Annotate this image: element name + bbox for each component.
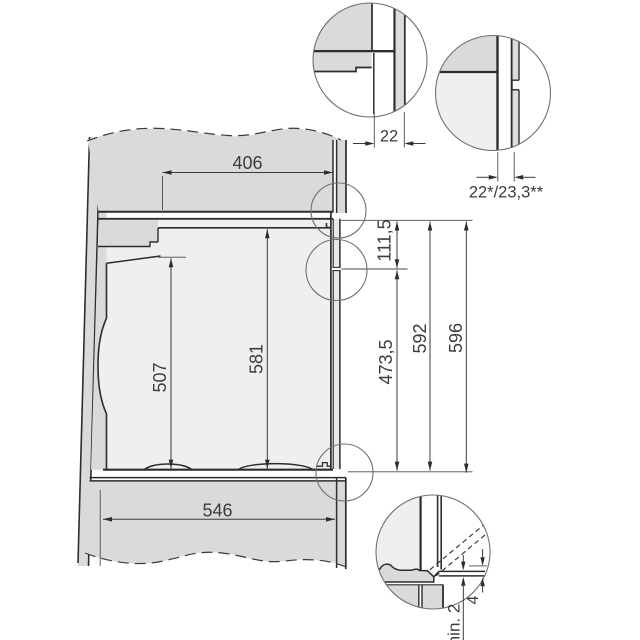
niche-interior xyxy=(95,219,331,470)
dim-front-total: 596 xyxy=(446,323,466,353)
installation-drawing: 406 546 507 581 111,5 473,5 xyxy=(0,0,640,640)
dim-top-trim: 22 xyxy=(380,128,398,146)
dim-niche-front: 592 xyxy=(410,323,430,353)
dim-top-depth: 406 xyxy=(232,153,262,173)
dim-cutout-height: 507 xyxy=(150,362,170,392)
base-shelf xyxy=(85,481,346,567)
detail-door-clearance: min. 2 4 xyxy=(374,493,492,640)
top-panel xyxy=(88,129,341,213)
dim-trim-offset: 4 xyxy=(465,595,482,604)
front-trim-strip xyxy=(333,219,339,469)
dim-front-upper: 111,5 xyxy=(375,219,395,261)
dim-interior-height: 581 xyxy=(247,344,267,374)
drawing-canvas: 406 546 507 581 111,5 473,5 xyxy=(0,0,640,640)
niche-top-block xyxy=(98,220,158,247)
dim-door-gap: min. 2 xyxy=(445,604,464,640)
open-door-projection-2 xyxy=(436,530,492,577)
dim-front-panel: 22*/23,3** xyxy=(469,184,544,202)
dim-base-depth: 546 xyxy=(202,501,232,521)
top-panel-front-trim xyxy=(337,140,346,213)
detail-top-trim: 22 xyxy=(305,0,427,148)
dim-front-lower: 473,5 xyxy=(376,339,396,384)
detail-front-panel: 22*/23,3** xyxy=(430,30,551,202)
